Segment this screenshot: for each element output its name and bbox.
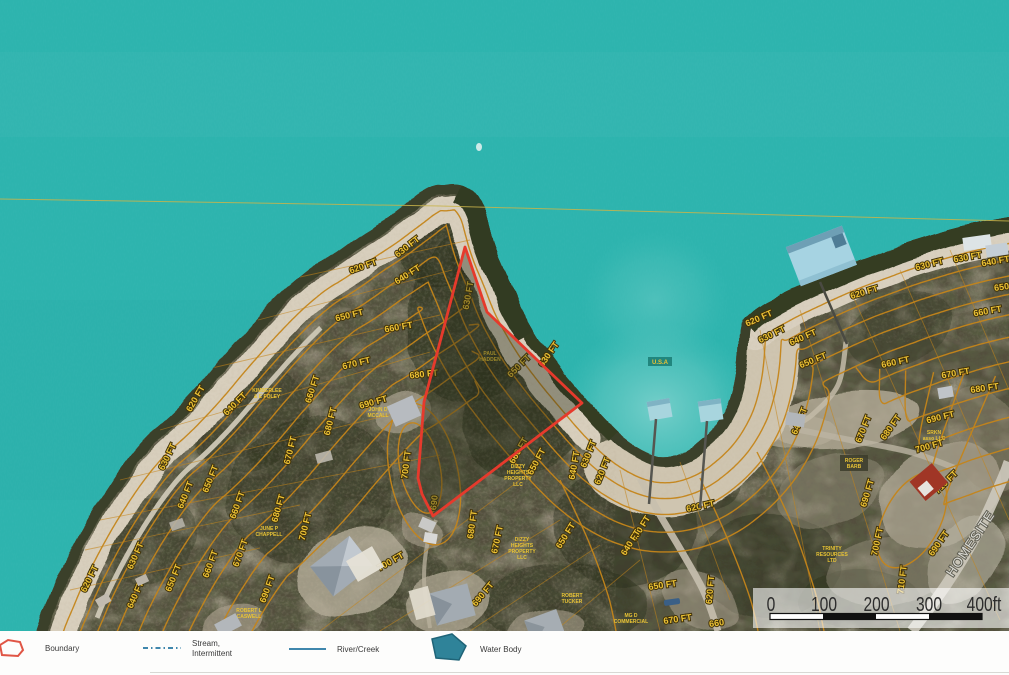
svg-text:CHAPPELL: CHAPPELL: [256, 532, 283, 538]
svg-text:400ft: 400ft: [967, 593, 1002, 615]
svg-text:100: 100: [811, 593, 837, 615]
svg-text:200: 200: [863, 593, 889, 615]
svg-text:LTD: LTD: [827, 558, 837, 564]
svg-text:River/Creek: River/Creek: [337, 645, 380, 654]
svg-text:Water Body: Water Body: [480, 645, 522, 654]
svg-text:BARB: BARB: [847, 464, 862, 470]
svg-text:MCCALL: MCCALL: [367, 413, 388, 419]
svg-text:LLC: LLC: [517, 555, 527, 561]
svg-text:LLC: LLC: [513, 482, 523, 488]
svg-text:asso LLC: asso LLC: [923, 436, 946, 442]
svg-text:COMMERCIAL: COMMERCIAL: [614, 619, 648, 625]
svg-text:0: 0: [767, 593, 776, 615]
svg-text:650: 650: [993, 281, 1009, 293]
svg-text:U.S.A: U.S.A: [652, 360, 669, 366]
svg-text:300: 300: [916, 593, 942, 615]
svg-text:Boundary: Boundary: [45, 644, 79, 653]
svg-text:TUCKER: TUCKER: [562, 599, 583, 605]
svg-text:Intermittent: Intermittent: [192, 649, 233, 658]
svg-text:CASWELL: CASWELL: [237, 614, 262, 620]
svg-text:Stream,: Stream,: [192, 639, 220, 648]
svg-text:& E FOLEY: & E FOLEY: [254, 394, 281, 400]
svg-text:660: 660: [708, 617, 724, 629]
